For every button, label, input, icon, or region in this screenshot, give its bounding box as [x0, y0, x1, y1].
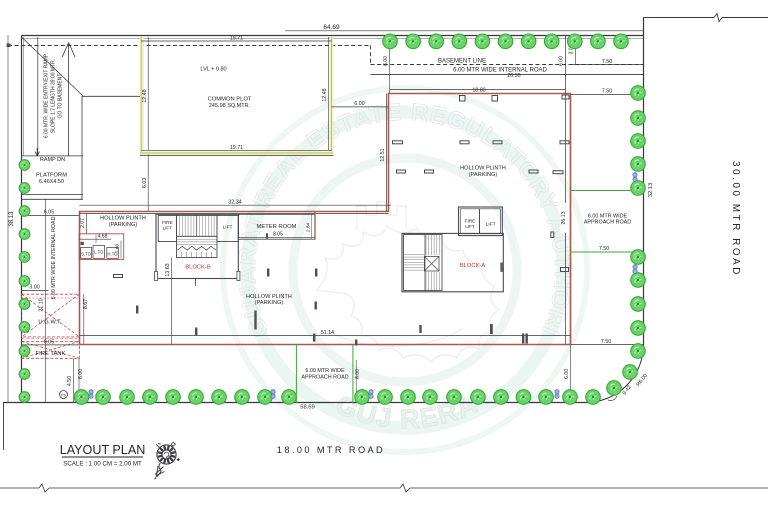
svg-text:BASEMENT LINE: BASEMENT LINE	[438, 58, 486, 64]
svg-text:BLOCK-B: BLOCK-B	[185, 265, 211, 271]
svg-text:6.00: 6.00	[355, 369, 361, 379]
svg-text:18.80: 18.80	[472, 87, 485, 93]
svg-text:6.00: 6.00	[559, 56, 565, 66]
svg-text:6.00: 6.00	[354, 101, 364, 107]
svg-text:SCALE : 1.00 CM = 2.00 MT: SCALE : 1.00 CM = 2.00 MT	[63, 460, 142, 467]
svg-text:6.00: 6.00	[78, 369, 84, 379]
svg-text:SLOPE 1:7 LENGTH 39.00 MTR.: SLOPE 1:7 LENGTH 39.00 MTR.	[51, 59, 57, 133]
svg-text:LIFT: LIFT	[223, 224, 233, 230]
svg-text:6.00 MTR. WIDE ENTRY/EXIT RAMP: 6.00 MTR. WIDE ENTRY/EXIT RAMP	[44, 53, 50, 138]
svg-text:APPROACH ROAD: APPROACH ROAD	[584, 220, 631, 226]
svg-text:LIFT: LIFT	[465, 224, 475, 229]
svg-text:18.00 MTR ROAD: 18.00 MTR ROAD	[277, 445, 385, 455]
svg-text:FIRE TANK: FIRE TANK	[36, 351, 66, 357]
svg-text:26.30: 26.30	[507, 73, 520, 79]
svg-text:2.07: 2.07	[80, 218, 86, 228]
svg-text:7.50: 7.50	[601, 339, 611, 345]
svg-text:LAYOUT PLAN: LAYOUT PLAN	[60, 443, 146, 457]
svg-text:LIFT: LIFT	[486, 221, 496, 227]
svg-text:51.14: 51.14	[321, 330, 334, 336]
svg-text:METER ROOM: METER ROOM	[257, 224, 297, 230]
svg-text:U.G.W.T.: U.G.W.T.	[38, 320, 62, 326]
svg-text:4.50: 4.50	[67, 376, 73, 386]
svg-text:PLATFORM: PLATFORM	[36, 173, 67, 179]
svg-text:HOLLOW PLINTH: HOLLOW PLINTH	[100, 216, 146, 222]
svg-text:4.68: 4.68	[98, 234, 108, 240]
svg-text:12.51: 12.51	[380, 148, 386, 161]
svg-text:6.00 MTR WIDE INTERNAL ROAD: 6.00 MTR WIDE INTERNAL ROAD	[453, 68, 547, 74]
svg-text:30.00 MTR ROAD: 30.00 MTR ROAD	[730, 161, 741, 277]
svg-text:RAMP DN: RAMP DN	[40, 157, 65, 163]
svg-text:19.71: 19.71	[230, 145, 243, 151]
svg-text:9.42: 9.42	[622, 384, 633, 396]
svg-text:245.98 SQ.MTR.: 245.98 SQ.MTR.	[209, 103, 251, 109]
svg-text:38.13: 38.13	[9, 211, 15, 227]
svg-text:26.13: 26.13	[561, 211, 567, 224]
svg-text:LVL + 0.80: LVL + 0.80	[200, 66, 226, 72]
svg-text:L.TO: L.TO	[94, 250, 104, 255]
svg-text:32.34: 32.34	[228, 199, 241, 205]
svg-text:13.63: 13.63	[165, 263, 171, 276]
svg-text:19.71: 19.71	[230, 36, 243, 42]
svg-text:COMMON PLOT: COMMON PLOT	[208, 96, 252, 102]
svg-text:21.10: 21.10	[39, 298, 45, 311]
svg-text:6.00 MTR WIDE: 6.00 MTR WIDE	[588, 213, 628, 219]
svg-text:2.84: 2.84	[305, 223, 311, 233]
svg-text:GO TO BASEMENT: GO TO BASEMENT	[58, 74, 64, 119]
svg-text:12.48: 12.48	[142, 89, 148, 102]
svg-text:58.69: 58.69	[300, 404, 315, 410]
svg-text:BLOCK-A: BLOCK-A	[460, 263, 486, 269]
svg-text:FIRE: FIRE	[162, 220, 172, 225]
svg-text:(PARKING): (PARKING)	[109, 222, 138, 228]
svg-text:HOLLOW PLINTH: HOLLOW PLINTH	[460, 166, 506, 172]
svg-text:6.00: 6.00	[383, 56, 389, 66]
svg-text:3.00: 3.00	[29, 285, 39, 291]
svg-text:(PARKING): (PARKING)	[469, 172, 498, 178]
svg-text:12.48: 12.48	[322, 88, 328, 101]
svg-text:R6.00: R6.00	[635, 373, 648, 388]
svg-text:8.05: 8.05	[273, 232, 283, 238]
svg-text:6.03: 6.03	[142, 178, 148, 188]
svg-text:(PARKING): (PARKING)	[255, 300, 284, 306]
svg-text:6.00 MTR WIDE INTERNAL ROAD: 6.00 MTR WIDE INTERNAL ROAD	[51, 216, 57, 299]
svg-text:APPROACH ROAD: APPROACH ROAD	[301, 374, 348, 380]
svg-text:HOLLOW PLINTH: HOLLOW PLINTH	[246, 294, 292, 300]
svg-text:LIFT: LIFT	[163, 225, 173, 230]
svg-text:7.50: 7.50	[599, 246, 609, 252]
svg-text:32.13: 32.13	[648, 183, 654, 198]
svg-text:7.50: 7.50	[602, 59, 612, 65]
svg-text:6.00: 6.00	[564, 369, 570, 379]
svg-text:P9: P9	[61, 393, 65, 397]
svg-text:2.68: 2.68	[115, 244, 120, 253]
svg-text:6.05: 6.05	[44, 339, 54, 345]
svg-text:6.00 MTR WIDE: 6.00 MTR WIDE	[305, 368, 345, 374]
svg-text:FIRE: FIRE	[465, 218, 475, 223]
svg-text:6.46X4.50: 6.46X4.50	[39, 179, 64, 185]
svg-text:8.67: 8.67	[83, 299, 89, 309]
svg-text:S.TO: S.TO	[81, 252, 91, 257]
svg-text:64.69: 64.69	[323, 24, 340, 31]
svg-text:7.50: 7.50	[602, 89, 612, 95]
